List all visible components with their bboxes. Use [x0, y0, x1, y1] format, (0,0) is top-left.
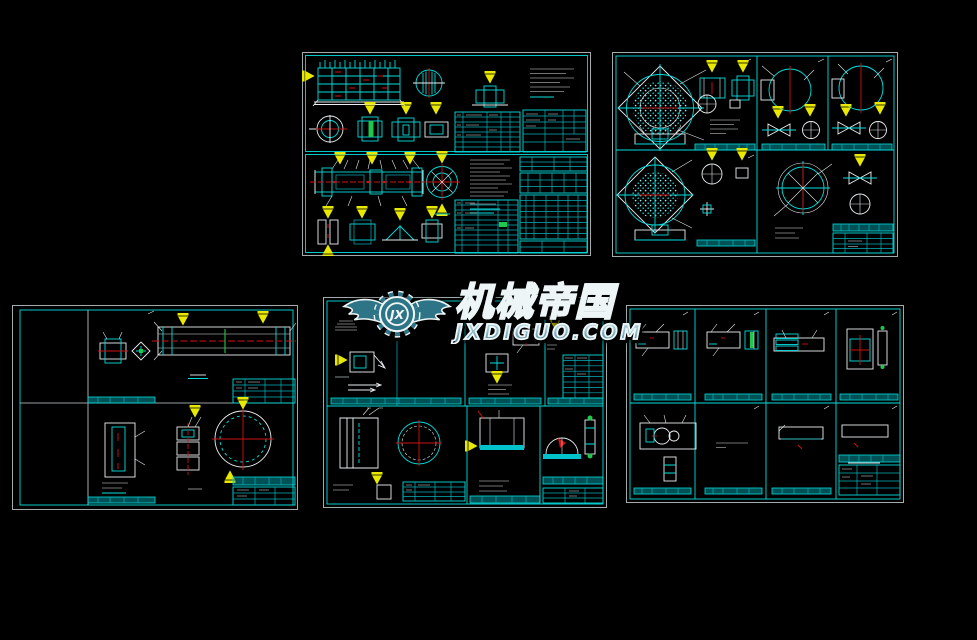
- sheet-top-right-drawing: [612, 52, 898, 257]
- bolt-circle-view: [188, 397, 274, 489]
- title-block: [523, 110, 586, 152]
- saddle-and-bolt-panel: [543, 416, 603, 504]
- jxdiguo-logo-icon: JX: [341, 283, 453, 349]
- sheet-bottom-left[interactable]: [12, 305, 298, 510]
- end-cover-front-view: [618, 59, 751, 151]
- liner-bar-detail: [102, 423, 145, 493]
- channel-and-bolt-circle-panel: [333, 408, 465, 501]
- feeder-detail: [472, 71, 508, 107]
- technical-notes: [530, 69, 574, 97]
- bar-panel-7: [772, 406, 831, 494]
- sheet-top-left[interactable]: [302, 52, 591, 256]
- lower-parts-table: [455, 200, 518, 253]
- title-block: [833, 224, 893, 253]
- end-cover-lower-view: [617, 148, 755, 246]
- sheet-bottom-left-drawing: [12, 305, 298, 510]
- sheet-bottom-right[interactable]: [626, 305, 904, 503]
- logo-monogram: JX: [387, 308, 406, 322]
- upper-parts-table: [88, 379, 295, 403]
- plate-panel-4: [840, 312, 898, 400]
- end-view-circle: [413, 68, 445, 98]
- lower-tables: [88, 477, 295, 505]
- segment-stack-detail: [177, 405, 201, 475]
- sheet-bottom-right-drawing: [626, 305, 904, 503]
- section-views-row: [309, 102, 448, 143]
- assembly-panel-5: [634, 415, 696, 494]
- cover-section-details: [698, 60, 754, 134]
- flange-detail: [98, 311, 154, 363]
- note-panel-6: [705, 406, 762, 494]
- bar-panel-8-title-block: [839, 406, 900, 495]
- box-weldment-panel: [465, 410, 540, 503]
- trunnion-panel-1: [761, 59, 825, 150]
- liner-grid-view: [302, 60, 405, 106]
- sheet-top-left-drawing: [302, 52, 591, 256]
- mill-assembly-view: [310, 152, 430, 206]
- cad-multi-sheet-view: JX 机械帝国 JXDIGUO.COM: [0, 0, 977, 640]
- winged-gear-emblem: JX: [344, 294, 450, 334]
- trunnion-panel-2: [832, 59, 892, 150]
- parts-list-table: [455, 112, 520, 152]
- bar-panel-3: [772, 312, 831, 400]
- right-tables: [520, 157, 587, 253]
- gusset-panel-2: [705, 312, 762, 400]
- watermark-domain-text: JXDIGUO.COM: [455, 322, 643, 342]
- watermark-brand-text: 机械帝国: [455, 283, 643, 321]
- watermark-text: 机械帝国 JXDIGUO.COM: [455, 283, 643, 342]
- watermark: JX 机械帝国 JXDIGUO.COM: [341, 283, 653, 353]
- detail-views-row: [318, 206, 442, 256]
- sheet-top-right[interactable]: [612, 52, 898, 257]
- cylinder-view: [152, 311, 296, 379]
